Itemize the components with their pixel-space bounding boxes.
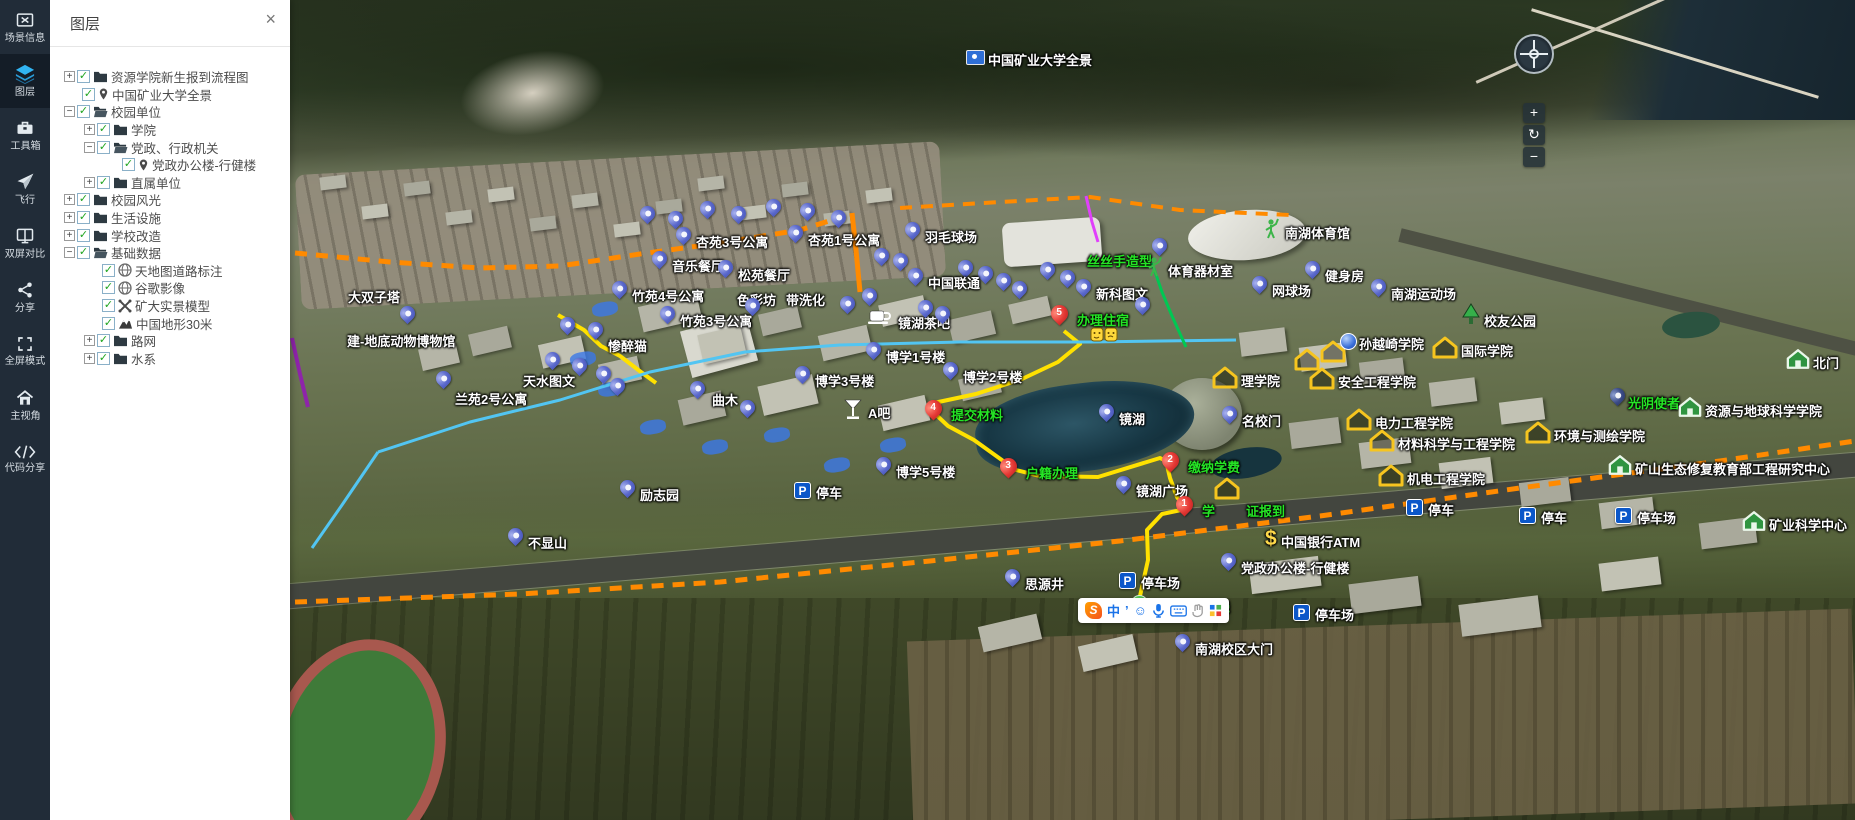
map-pin-blue[interactable] — [1218, 550, 1239, 571]
map-pin-blue[interactable] — [1002, 566, 1023, 587]
highway-line — [1531, 8, 1819, 99]
building-block — [948, 310, 996, 343]
map-label: 停车场 — [1637, 508, 1676, 527]
scene-info-icon — [15, 10, 35, 30]
dual-screen-icon — [15, 226, 35, 246]
layer-node-label[interactable]: 直属单位 — [131, 173, 181, 192]
map-label: 停车 — [1541, 508, 1567, 527]
building-block — [757, 374, 818, 416]
line-purple — [292, 338, 308, 407]
map-label: 音乐餐厅 — [672, 256, 724, 275]
map-label: 励志园 — [640, 485, 679, 504]
map-pin-blue[interactable] — [873, 454, 894, 475]
home-view-icon — [15, 388, 35, 408]
zoom-controls: + ↻ − — [1523, 103, 1545, 169]
farm-fields — [290, 598, 1855, 820]
building-block — [865, 187, 892, 203]
map-label: 中国联通 — [928, 273, 980, 292]
map-label: 博学1号楼 — [886, 347, 945, 366]
layer-checkbox[interactable]: ✓ — [82, 88, 95, 101]
map-pin-blue[interactable] — [1249, 273, 1270, 294]
layer-node-label[interactable]: 水系 — [131, 349, 156, 368]
building-block — [1429, 377, 1478, 406]
sidebar-item-label: 双屏对比 — [5, 249, 45, 259]
layers-icon — [14, 64, 36, 84]
map-label-green: 证报到 — [1246, 501, 1285, 520]
map-pin-blue[interactable] — [837, 293, 858, 314]
map-label: 惨醉猫 — [608, 336, 647, 355]
map-label: 矿山生态修复教育部工程研究中心 — [1635, 459, 1830, 478]
layer-tree-row: +✓学校改造 — [50, 226, 290, 244]
map-pin-blue[interactable] — [859, 285, 880, 306]
building-block — [487, 186, 514, 202]
globe-icon — [118, 263, 132, 277]
parking-icon[interactable]: P — [1519, 507, 1536, 524]
layer-tree-row: ✓谷歌影像 — [50, 279, 290, 297]
layer-node-label[interactable]: 党政办公楼-行健楼 — [152, 155, 256, 174]
building-block — [319, 174, 346, 190]
layers-panel-title: 图层 — [70, 13, 100, 34]
layer-tree-row: +✓路网 — [50, 332, 290, 350]
highway-line — [1476, 0, 1715, 84]
map-label: 南湖运动场 — [1391, 284, 1456, 303]
parking-icon[interactable]: P — [1406, 499, 1423, 516]
blue-tarp — [701, 438, 729, 456]
map-pin-blue[interactable] — [1073, 276, 1094, 297]
expand-icon[interactable]: + — [64, 71, 75, 82]
building-block — [978, 614, 1042, 653]
map-pin-blue[interactable] — [687, 378, 708, 399]
map-pin-blue[interactable] — [1149, 235, 1170, 256]
model-icon — [118, 299, 132, 313]
layer-node-label[interactable]: 中国地形30米 — [136, 314, 212, 333]
layer-node-label[interactable]: 基础数据 — [111, 243, 161, 262]
map-label: 曲木 — [712, 390, 738, 409]
map-label: 天水图文 — [523, 371, 575, 390]
parking-icon[interactable]: P — [1615, 507, 1632, 524]
sidebar-item-label: 飞行 — [15, 195, 35, 205]
sidebar-item-code-share[interactable]: 代码分享 — [0, 432, 50, 486]
collapse-icon[interactable]: − — [64, 106, 75, 117]
map-pin-blue[interactable] — [433, 368, 454, 389]
pin-icon — [98, 87, 109, 101]
map-label: 停车 — [1428, 500, 1454, 519]
map-label: 停车场 — [1315, 605, 1354, 624]
layer-tree-row: −✓校园单位 — [50, 103, 290, 121]
map-label-green: 缴纳学费 — [1188, 457, 1240, 476]
map-label: 中国矿业大学全景 — [988, 50, 1092, 69]
collapse-icon[interactable]: − — [84, 142, 95, 153]
ime-emoji-icon[interactable]: ☺ — [1134, 603, 1147, 618]
folder-icon — [93, 229, 108, 242]
map-label: 健身房 — [1325, 266, 1364, 285]
building-block — [468, 326, 512, 356]
building-block — [1458, 595, 1541, 637]
layer-node-label[interactable]: 学校改造 — [111, 226, 161, 245]
sidebar-item-toolbox[interactable]: 工具箱 — [0, 108, 50, 162]
building-block — [1348, 576, 1421, 614]
sidebar-item-label: 场景信息 — [5, 33, 45, 43]
folder-open-icon — [93, 246, 108, 259]
bank-atm-icon[interactable]: $ — [1265, 527, 1277, 551]
compass-hub — [1529, 49, 1539, 59]
map-label: 兰苑2号公寓 — [455, 389, 527, 408]
map-pin-blue[interactable] — [792, 363, 813, 384]
map-label: 带洗化 — [786, 290, 825, 309]
sidebar-item-label: 工具箱 — [10, 141, 40, 151]
pin-icon — [138, 158, 149, 172]
folder-open-icon — [113, 141, 128, 154]
map-label-green: 丝丝手造型 — [1087, 251, 1152, 270]
mountain-shade — [290, 0, 1855, 170]
map-pin-blue[interactable] — [1113, 473, 1134, 494]
expand-icon[interactable]: + — [84, 335, 95, 346]
map-label: A吧 — [868, 403, 890, 422]
folder-icon — [113, 123, 128, 136]
parking-icon[interactable]: P — [1119, 572, 1136, 589]
expand-icon[interactable]: + — [84, 124, 95, 135]
expand-icon[interactable]: + — [64, 194, 75, 205]
ime-punct[interactable]: ’ — [1125, 603, 1129, 618]
layer-checkbox[interactable]: ✓ — [77, 246, 90, 259]
layer-tree-row: +✓水系 — [50, 350, 290, 368]
sidebar-item-scene-info[interactable]: 场景信息 — [0, 0, 50, 54]
layer-checkbox[interactable]: ✓ — [102, 281, 115, 294]
map-pin-blue[interactable] — [1172, 631, 1193, 652]
expand-icon[interactable]: + — [64, 230, 75, 241]
building-block — [403, 180, 430, 196]
expand-icon[interactable]: + — [84, 177, 95, 188]
sidebar-item-share[interactable]: 分享 — [0, 270, 50, 324]
map-pin-blue[interactable] — [1096, 401, 1117, 422]
layer-checkbox[interactable]: ✓ — [102, 264, 115, 277]
pond — [1661, 309, 1721, 341]
sidebar-item-layers[interactable]: 图层 — [0, 54, 50, 108]
folder-icon — [113, 176, 128, 189]
map-label: 环境与测绘学院 — [1554, 426, 1645, 445]
route-step-pin[interactable]: 5 — [1047, 301, 1071, 325]
line-magenta — [1086, 196, 1098, 242]
route-step-pin[interactable]: 1 — [1172, 492, 1196, 516]
sidebar-item-label: 代码分享 — [5, 463, 45, 473]
building-block — [1519, 477, 1572, 507]
layer-checkbox[interactable]: ✓ — [97, 352, 110, 365]
map-pin-blue[interactable] — [905, 265, 926, 286]
quarry-patch — [454, 40, 611, 146]
layer-node-label[interactable]: 资源学院新生报到流程图 — [111, 67, 249, 86]
layer-node-label[interactable]: 学院 — [131, 120, 156, 139]
expand-icon[interactable]: + — [84, 353, 95, 364]
layer-tree-row: +✓学院 — [50, 121, 290, 139]
map-pin-blue[interactable] — [1219, 403, 1240, 424]
sidebar-item-label: 全屏模式 — [5, 356, 45, 366]
globe-icon — [118, 281, 132, 295]
layer-tree-row: ✓天地图道路标注 — [50, 262, 290, 280]
map-pin-dark[interactable] — [1607, 385, 1628, 406]
compass[interactable] — [1514, 34, 1554, 74]
map-pin-blue[interactable] — [797, 200, 818, 221]
map-label: 南湖体育馆 — [1285, 223, 1350, 242]
layer-checkbox[interactable]: ✓ — [97, 176, 110, 189]
map-label: 思源井 — [1025, 574, 1064, 593]
ime-hand-icon[interactable] — [1192, 604, 1204, 618]
ime-keyboard-icon[interactable] — [1170, 605, 1187, 617]
map-label: 北门 — [1813, 353, 1839, 372]
building-block — [571, 192, 598, 208]
ime-grid-icon[interactable] — [1209, 604, 1222, 617]
blue-tarp — [591, 300, 619, 318]
road-north-trace — [900, 197, 1290, 215]
building-block — [818, 325, 873, 362]
map-3d-view[interactable]: 中国矿业大学全景大双子塔建-地底动物博物馆惨醉猫天水图文兰苑2号公寓曲木励志园P… — [290, 0, 1855, 820]
layer-tree-row: −✓基础数据 — [50, 244, 290, 262]
layer-checkbox[interactable]: ✓ — [77, 193, 90, 206]
building-block — [697, 325, 747, 364]
layer-checkbox[interactable]: ✓ — [77, 211, 90, 224]
toolbox-icon — [15, 118, 35, 138]
map-pin-blue[interactable] — [585, 319, 606, 340]
folder-open-icon — [93, 105, 108, 118]
map-pin-blue[interactable] — [617, 477, 638, 498]
map-label: 理学院 — [1241, 371, 1280, 390]
map-label: 博学3号楼 — [815, 371, 874, 390]
layer-tree-row: ✓党政办公楼-行健楼 — [50, 156, 290, 174]
layer-node-label[interactable]: 生活设施 — [111, 208, 161, 227]
map-pin-blue[interactable] — [890, 250, 911, 271]
blue-tarp — [639, 418, 667, 436]
layer-tree-row: ✓中国地形30米 — [50, 314, 290, 332]
map-label: 体育器材室 — [1168, 261, 1233, 280]
folder-icon — [93, 193, 108, 206]
layer-checkbox[interactable]: ✓ — [122, 158, 135, 171]
map-label-green: 提交材料 — [951, 405, 1003, 424]
map-pin-blue[interactable] — [863, 339, 884, 360]
map-pin-blue[interactable] — [1037, 259, 1058, 280]
map-label: 党政办公楼-行健楼 — [1241, 558, 1349, 577]
map-label: 网球场 — [1272, 281, 1311, 300]
map-pin-blue[interactable] — [728, 203, 749, 224]
building-block — [1599, 556, 1662, 591]
zoom-in-button[interactable]: + — [1523, 103, 1545, 123]
route-step-pin[interactable]: 3 — [996, 454, 1020, 478]
layer-checkbox[interactable]: ✓ — [77, 105, 90, 118]
sidebar-item-home-view[interactable]: 主视角 — [0, 378, 50, 432]
layer-checkbox[interactable]: ✓ — [97, 334, 110, 347]
sidebar-item-dual-screen[interactable]: 双屏对比 — [0, 216, 50, 270]
layer-checkbox[interactable]: ✓ — [77, 229, 90, 242]
map-pin-blue[interactable] — [542, 349, 563, 370]
layer-checkbox[interactable]: ✓ — [77, 70, 90, 83]
building-block — [529, 215, 556, 231]
map-label: 矿业科学中心 — [1769, 515, 1847, 534]
map-label: 镜湖 — [1119, 409, 1145, 428]
map-pin-blue[interactable] — [697, 198, 718, 219]
map-pin-blue[interactable] — [902, 219, 923, 240]
layer-node-label[interactable]: 路网 — [131, 331, 156, 350]
expand-icon[interactable]: + — [64, 212, 75, 223]
app: 中国矿业大学全景大双子塔建-地底动物博物馆惨醉猫天水图文兰苑2号公寓曲木励志园P… — [0, 0, 1855, 820]
sidebar-item-label: 主视角 — [10, 411, 40, 421]
map-label: 博学5号楼 — [896, 462, 955, 481]
layer-node-label[interactable]: 谷歌影像 — [135, 278, 185, 297]
layers-panel: 图层 × +✓资源学院新生报到流程图✓中国矿业大学全景−✓校园单位+✓学院−✓党… — [50, 0, 290, 820]
layer-tree-row: +✓生活设施 — [50, 209, 290, 227]
fullscreen-icon — [16, 335, 34, 353]
map-pin-blue[interactable] — [737, 397, 758, 418]
map-pin-blue[interactable] — [637, 203, 658, 224]
map-label: 中国银行ATM — [1281, 532, 1360, 551]
map-label-green: 光阴使者 — [1628, 393, 1680, 412]
layer-tree-row: +✓校园风光 — [50, 191, 290, 209]
college-orb-icon[interactable] — [1340, 333, 1357, 350]
sidebar-item-label: 分享 — [15, 303, 35, 313]
layer-tree-row: ✓矿大实景模型 — [50, 297, 290, 315]
layer-tree-row: −✓党政、行政机关 — [50, 138, 290, 156]
layer-tree-row: +✓直属单位 — [50, 174, 290, 192]
panorama-icon[interactable] — [966, 50, 985, 65]
sidebar: 场景信息图层工具箱飞行双屏对比分享全屏模式主视角代码分享 — [0, 0, 50, 820]
share-icon — [16, 280, 34, 300]
zoom-out-button[interactable]: − — [1523, 147, 1545, 167]
layer-node-label[interactable]: 中国矿业大学全景 — [112, 85, 212, 104]
building-block — [1008, 296, 1051, 324]
water-bay — [1425, 0, 1855, 120]
map-pin-blue[interactable] — [557, 314, 578, 335]
map-label-green: 学 — [1202, 501, 1215, 520]
map-label: 停车 — [816, 483, 842, 502]
layer-node-label[interactable]: 党政、行政机关 — [131, 138, 219, 157]
road-drop-trace — [852, 213, 860, 292]
map-pin-blue[interactable] — [785, 222, 806, 243]
building-block — [697, 175, 724, 191]
layer-checkbox[interactable]: ✓ — [97, 123, 110, 136]
close-icon[interactable]: × — [265, 10, 276, 28]
sidebar-item-label: 图层 — [15, 87, 35, 97]
map-pin-blue[interactable] — [505, 525, 526, 546]
river-branch — [312, 452, 378, 548]
map-pin-blue[interactable] — [649, 248, 670, 269]
blue-tarp — [823, 456, 851, 474]
sidebar-item-fullscreen[interactable]: 全屏模式 — [0, 324, 50, 378]
map-label: 竹苑3号公寓 — [680, 311, 752, 330]
map-label: 国际学院 — [1461, 341, 1513, 360]
reset-view-button[interactable]: ↻ — [1523, 125, 1545, 145]
layer-node-label[interactable]: 校园风光 — [111, 190, 161, 209]
folder-icon — [113, 334, 128, 347]
sidebar-item-flight[interactable]: 飞行 — [0, 162, 50, 216]
ime-logo-sogou[interactable]: S — [1085, 602, 1102, 619]
layer-node-label[interactable]: 矿大实景模型 — [135, 296, 210, 315]
route-step-pin[interactable]: 4 — [921, 396, 945, 420]
layer-node-label[interactable]: 校园单位 — [111, 102, 161, 121]
map-label: 南湖校区大门 — [1195, 639, 1273, 658]
folder-icon — [93, 70, 108, 83]
map-label: 孙越崎学院 — [1359, 334, 1424, 353]
layer-checkbox[interactable]: ✓ — [97, 141, 110, 154]
terrain-icon — [118, 317, 133, 330]
map-label: 安全工程学院 — [1338, 372, 1416, 391]
map-label: 博学2号楼 — [963, 367, 1022, 386]
building-block — [758, 306, 802, 336]
map-pin-blue[interactable] — [607, 375, 628, 396]
map-label: 建-地底动物博物馆 — [347, 331, 455, 350]
map-pin-blue[interactable] — [397, 303, 418, 324]
folder-icon — [113, 352, 128, 365]
collapse-icon[interactable]: − — [64, 247, 75, 258]
map-label: 大双子塔 — [348, 287, 400, 306]
layer-node-label[interactable]: 天地图道路标注 — [135, 261, 223, 280]
layer-tree-row: ✓中国矿业大学全景 — [50, 86, 290, 104]
ime-mic-icon[interactable] — [1152, 603, 1165, 618]
blue-tarp — [763, 426, 791, 444]
parking-icon[interactable]: P — [1293, 604, 1310, 621]
map-pin-blue[interactable] — [657, 303, 678, 324]
map-label: 不显山 — [528, 533, 567, 552]
building-block — [361, 203, 388, 219]
blue-tarp — [879, 436, 907, 454]
building-block — [1239, 327, 1288, 356]
map-pin-blue[interactable] — [1368, 276, 1389, 297]
map-label: 杏苑1号公寓 — [808, 230, 880, 249]
layer-tree: +✓资源学院新生报到流程图✓中国矿业大学全景−✓校园单位+✓学院−✓党政、行政机… — [50, 47, 290, 367]
map-label: 材料科学与工程学院 — [1398, 434, 1515, 453]
map-label: 杏苑3号公寓 — [696, 232, 768, 251]
route-step-pin[interactable]: 2 — [1158, 448, 1182, 472]
building-block — [1289, 417, 1342, 449]
map-pin-blue[interactable] — [609, 278, 630, 299]
map-label: 校友公园 — [1484, 311, 1536, 330]
layers-panel-header: 图层 × — [50, 0, 290, 47]
ime-bar: S中’☺ — [1078, 598, 1229, 623]
map-label: 竹苑4号公寓 — [632, 286, 704, 305]
code-share-icon — [14, 444, 36, 460]
layer-tree-row: +✓资源学院新生报到流程图 — [50, 68, 290, 86]
building-block — [613, 221, 640, 237]
map-label: 羽毛球场 — [925, 227, 977, 246]
flight-icon — [15, 172, 35, 192]
map-label: 松苑餐厅 — [738, 265, 790, 284]
map-pin-blue[interactable] — [828, 207, 849, 228]
layer-checkbox[interactable]: ✓ — [102, 299, 115, 312]
map-label: 机电工程学院 — [1407, 469, 1485, 488]
map-pin-blue[interactable] — [763, 196, 784, 217]
folder-icon — [93, 211, 108, 224]
map-label: 停车场 — [1141, 573, 1180, 592]
map-label: 名校门 — [1242, 411, 1281, 430]
map-label: 资源与地球科学学院 — [1705, 401, 1822, 420]
map-label-green: 户籍办理 — [1026, 463, 1078, 482]
map-pin-blue[interactable] — [1302, 258, 1323, 279]
farm-fields-tan — [907, 609, 1855, 820]
layer-checkbox[interactable]: ✓ — [102, 317, 115, 330]
route-overlay — [290, 0, 1855, 820]
parking-icon[interactable]: P — [794, 482, 811, 499]
building-block — [1078, 634, 1138, 672]
building-block — [781, 181, 808, 197]
map-pin-blue[interactable] — [1009, 278, 1030, 299]
building-block — [445, 209, 472, 225]
ime-lang-zh[interactable]: 中 — [1107, 601, 1120, 620]
